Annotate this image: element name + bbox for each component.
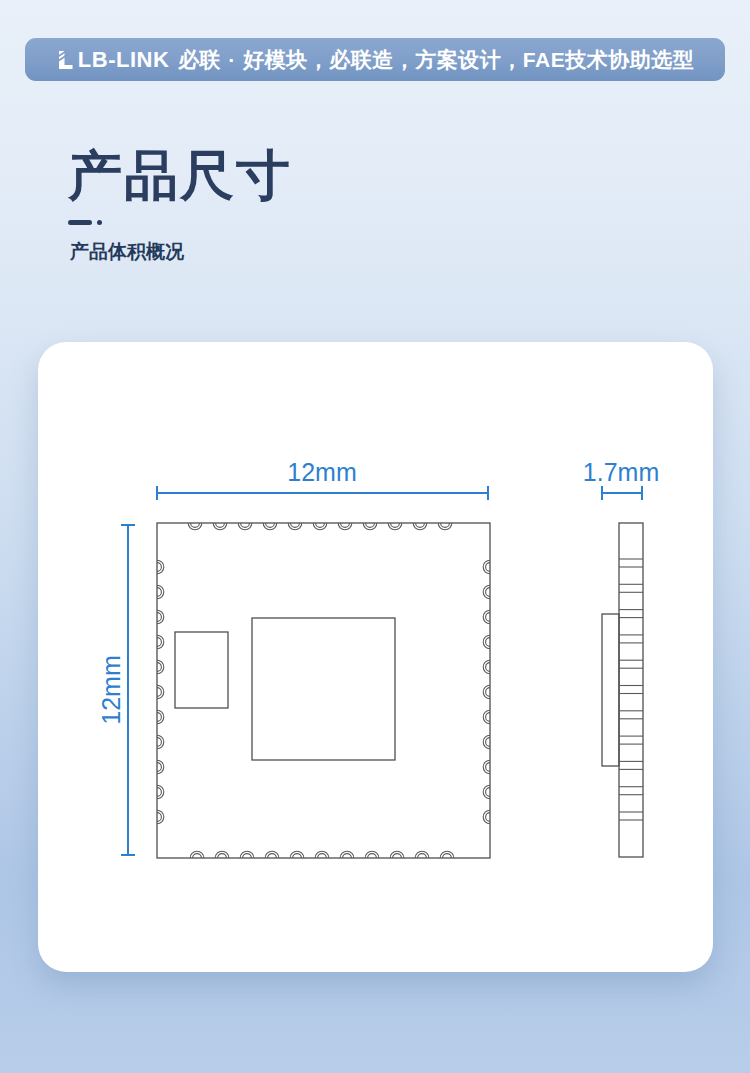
module-top-view xyxy=(157,523,490,858)
castellation-top-row xyxy=(188,523,452,530)
left-height-label: 12mm xyxy=(97,655,125,724)
thickness-label: 1.7mm xyxy=(583,458,659,486)
top-width-label: 12mm xyxy=(287,458,356,486)
header-tagline: 好模块，必联造，方案设计，FAE技术协助选型 xyxy=(243,46,694,74)
separator-dot: · xyxy=(228,48,235,72)
lb-link-logo: LB-LINK xyxy=(56,47,169,73)
side-view-pad-bands xyxy=(619,559,643,820)
thickness-dimension: 1.7mm xyxy=(583,458,659,500)
underline-dash xyxy=(68,220,92,225)
top-width-dimension: 12mm xyxy=(157,458,488,500)
section-subtitle: 产品体积概况 xyxy=(70,239,292,265)
lb-link-logo-icon xyxy=(56,50,74,70)
component-shield-square xyxy=(252,618,395,760)
side-view-body xyxy=(619,523,643,857)
module-outline xyxy=(157,523,490,858)
title-underline-decoration xyxy=(68,220,292,225)
header-banner: LB-LINK 必联 · 好模块，必联造，方案设计，FAE技术协助选型 xyxy=(25,38,725,81)
logo-text: LB-LINK xyxy=(78,47,169,73)
left-height-dimension: 12mm xyxy=(97,525,135,855)
section-title-block: 产品尺寸 产品体积概况 xyxy=(68,142,292,265)
castellation-left-column xyxy=(157,560,164,824)
castellation-right-column xyxy=(483,560,490,824)
dimensions-card: 12mm 1.7mm 12mm xyxy=(38,342,713,972)
castellation-bottom-row xyxy=(190,851,454,858)
side-view-shield-profile xyxy=(602,614,619,766)
dimension-drawing: 12mm 1.7mm 12mm xyxy=(38,342,713,972)
component-small-rect xyxy=(175,632,228,708)
module-side-view xyxy=(602,523,643,857)
underline-dot xyxy=(97,220,102,225)
page-title: 产品尺寸 xyxy=(68,142,292,210)
product-dimensions-page: LB-LINK 必联 · 好模块，必联造，方案设计，FAE技术协助选型 产品尺寸… xyxy=(0,0,750,1073)
brand-name: 必联 xyxy=(178,46,220,74)
